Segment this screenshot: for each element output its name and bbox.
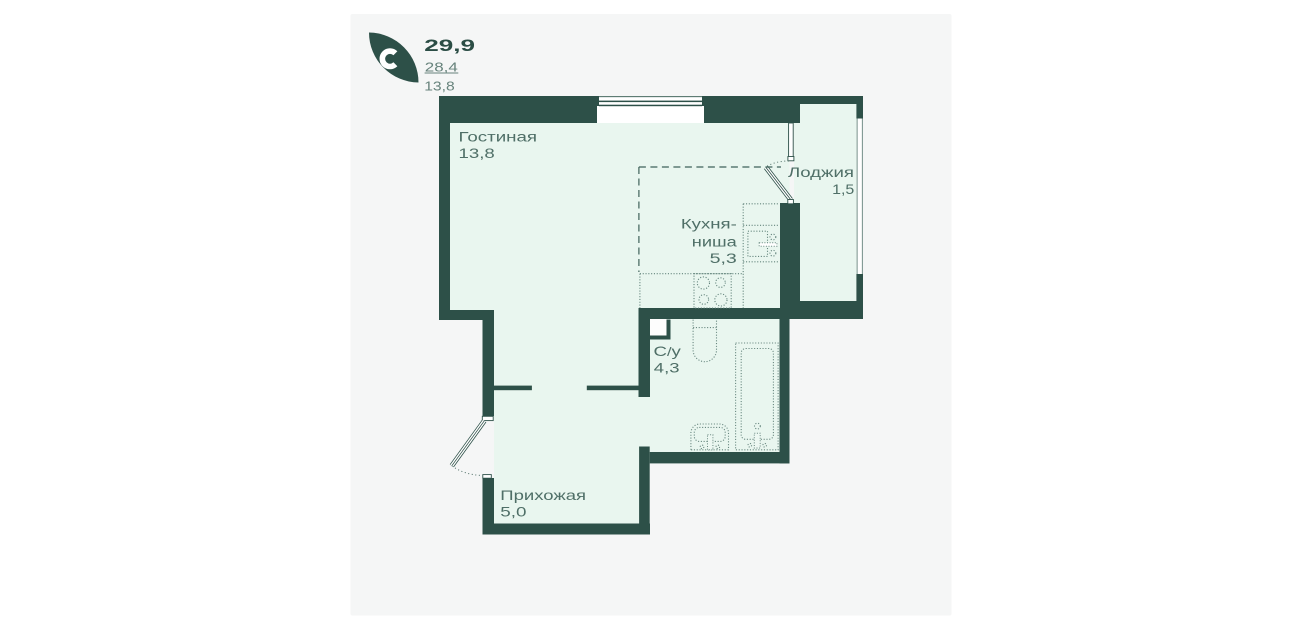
svg-text:5,0: 5,0 (500, 504, 526, 520)
svg-text:Гостиная: Гостиная (459, 129, 538, 145)
svg-text:13,8: 13,8 (459, 146, 495, 161)
svg-text:13,8: 13,8 (424, 79, 455, 94)
svg-text:29,9: 29,9 (424, 36, 475, 55)
svg-text:Лоджия: Лоджия (788, 165, 854, 180)
svg-text:5,3: 5,3 (710, 250, 737, 266)
svg-text:1,5: 1,5 (832, 182, 854, 198)
svg-text:Кухня-: Кухня- (681, 217, 737, 232)
svg-text:С/у: С/у (654, 344, 682, 359)
svg-text:4,3: 4,3 (654, 360, 680, 375)
svg-text:ниша: ниша (692, 234, 738, 250)
svg-text:Прихожая: Прихожая (500, 488, 586, 503)
